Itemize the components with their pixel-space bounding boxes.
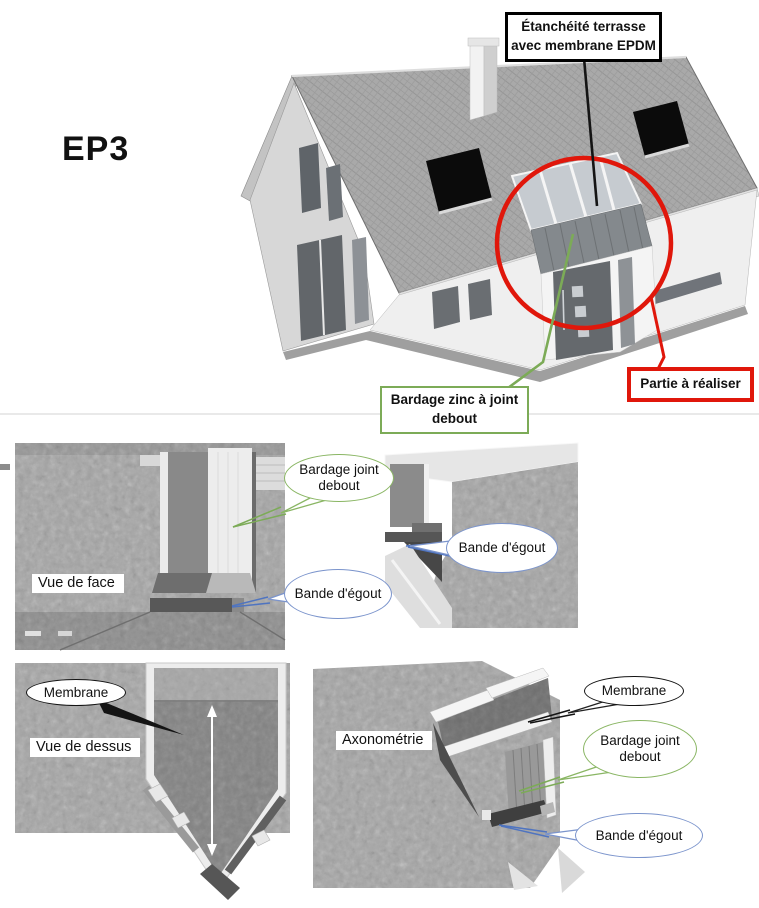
chimney (468, 38, 499, 120)
egout-band (150, 598, 232, 612)
front-window-1 (432, 286, 460, 329)
callout-axo-membrane: Membrane (584, 676, 684, 706)
gable-window-lower (352, 237, 369, 324)
zinc-annotation-box: Bardage zinc à joint debout (380, 386, 529, 434)
edge-mark (0, 464, 10, 470)
side-cladding-panel (390, 464, 424, 527)
gable-window-upper (299, 143, 321, 213)
callout-axo-bande: Bande d'égout (575, 813, 703, 858)
gable-window-upper-small (326, 164, 343, 221)
front-view-image (15, 443, 285, 650)
house-illustration (241, 38, 759, 388)
axo-view-image (313, 660, 620, 893)
door-pane (572, 286, 584, 298)
bottom-dash-2 (58, 631, 72, 636)
callout-top-membrane: Membrane (26, 679, 126, 706)
axo-bracket (482, 810, 491, 820)
panel-foot-light (206, 573, 256, 593)
callout-side-bande: Bande d'égout (446, 523, 558, 573)
epdm-annotation-box: Étanchéité terrasse avec membrane EPDM (505, 12, 662, 62)
page-title: EP3 (62, 130, 129, 169)
dark-panel (168, 452, 208, 593)
front-view-label: Vue de face (32, 574, 124, 593)
partie-annotation-box: Partie à réaliser (627, 367, 754, 402)
door-sidelight (618, 257, 635, 348)
lower-shadow (15, 612, 285, 650)
panel-gap (160, 452, 168, 593)
light-panel (208, 448, 252, 593)
bottom-dash (25, 631, 41, 636)
top-view-label: Vue de dessus (30, 738, 140, 757)
callout-front-bardage: Bardage joint debout (284, 454, 394, 502)
document-page: EP3 Étanchéité terrasse avec membrane EP… (0, 0, 759, 908)
side-egout-bar (385, 532, 442, 542)
axo-light-wedge (558, 848, 585, 893)
door-pane (575, 306, 587, 318)
side-panel-edge (424, 464, 429, 527)
front-window-2 (468, 279, 492, 320)
axo-view-label: Axonométrie (336, 731, 432, 750)
callout-axo-bardage: Bardage joint debout (583, 720, 697, 778)
callout-front-bande: Bande d'égout (284, 569, 392, 619)
